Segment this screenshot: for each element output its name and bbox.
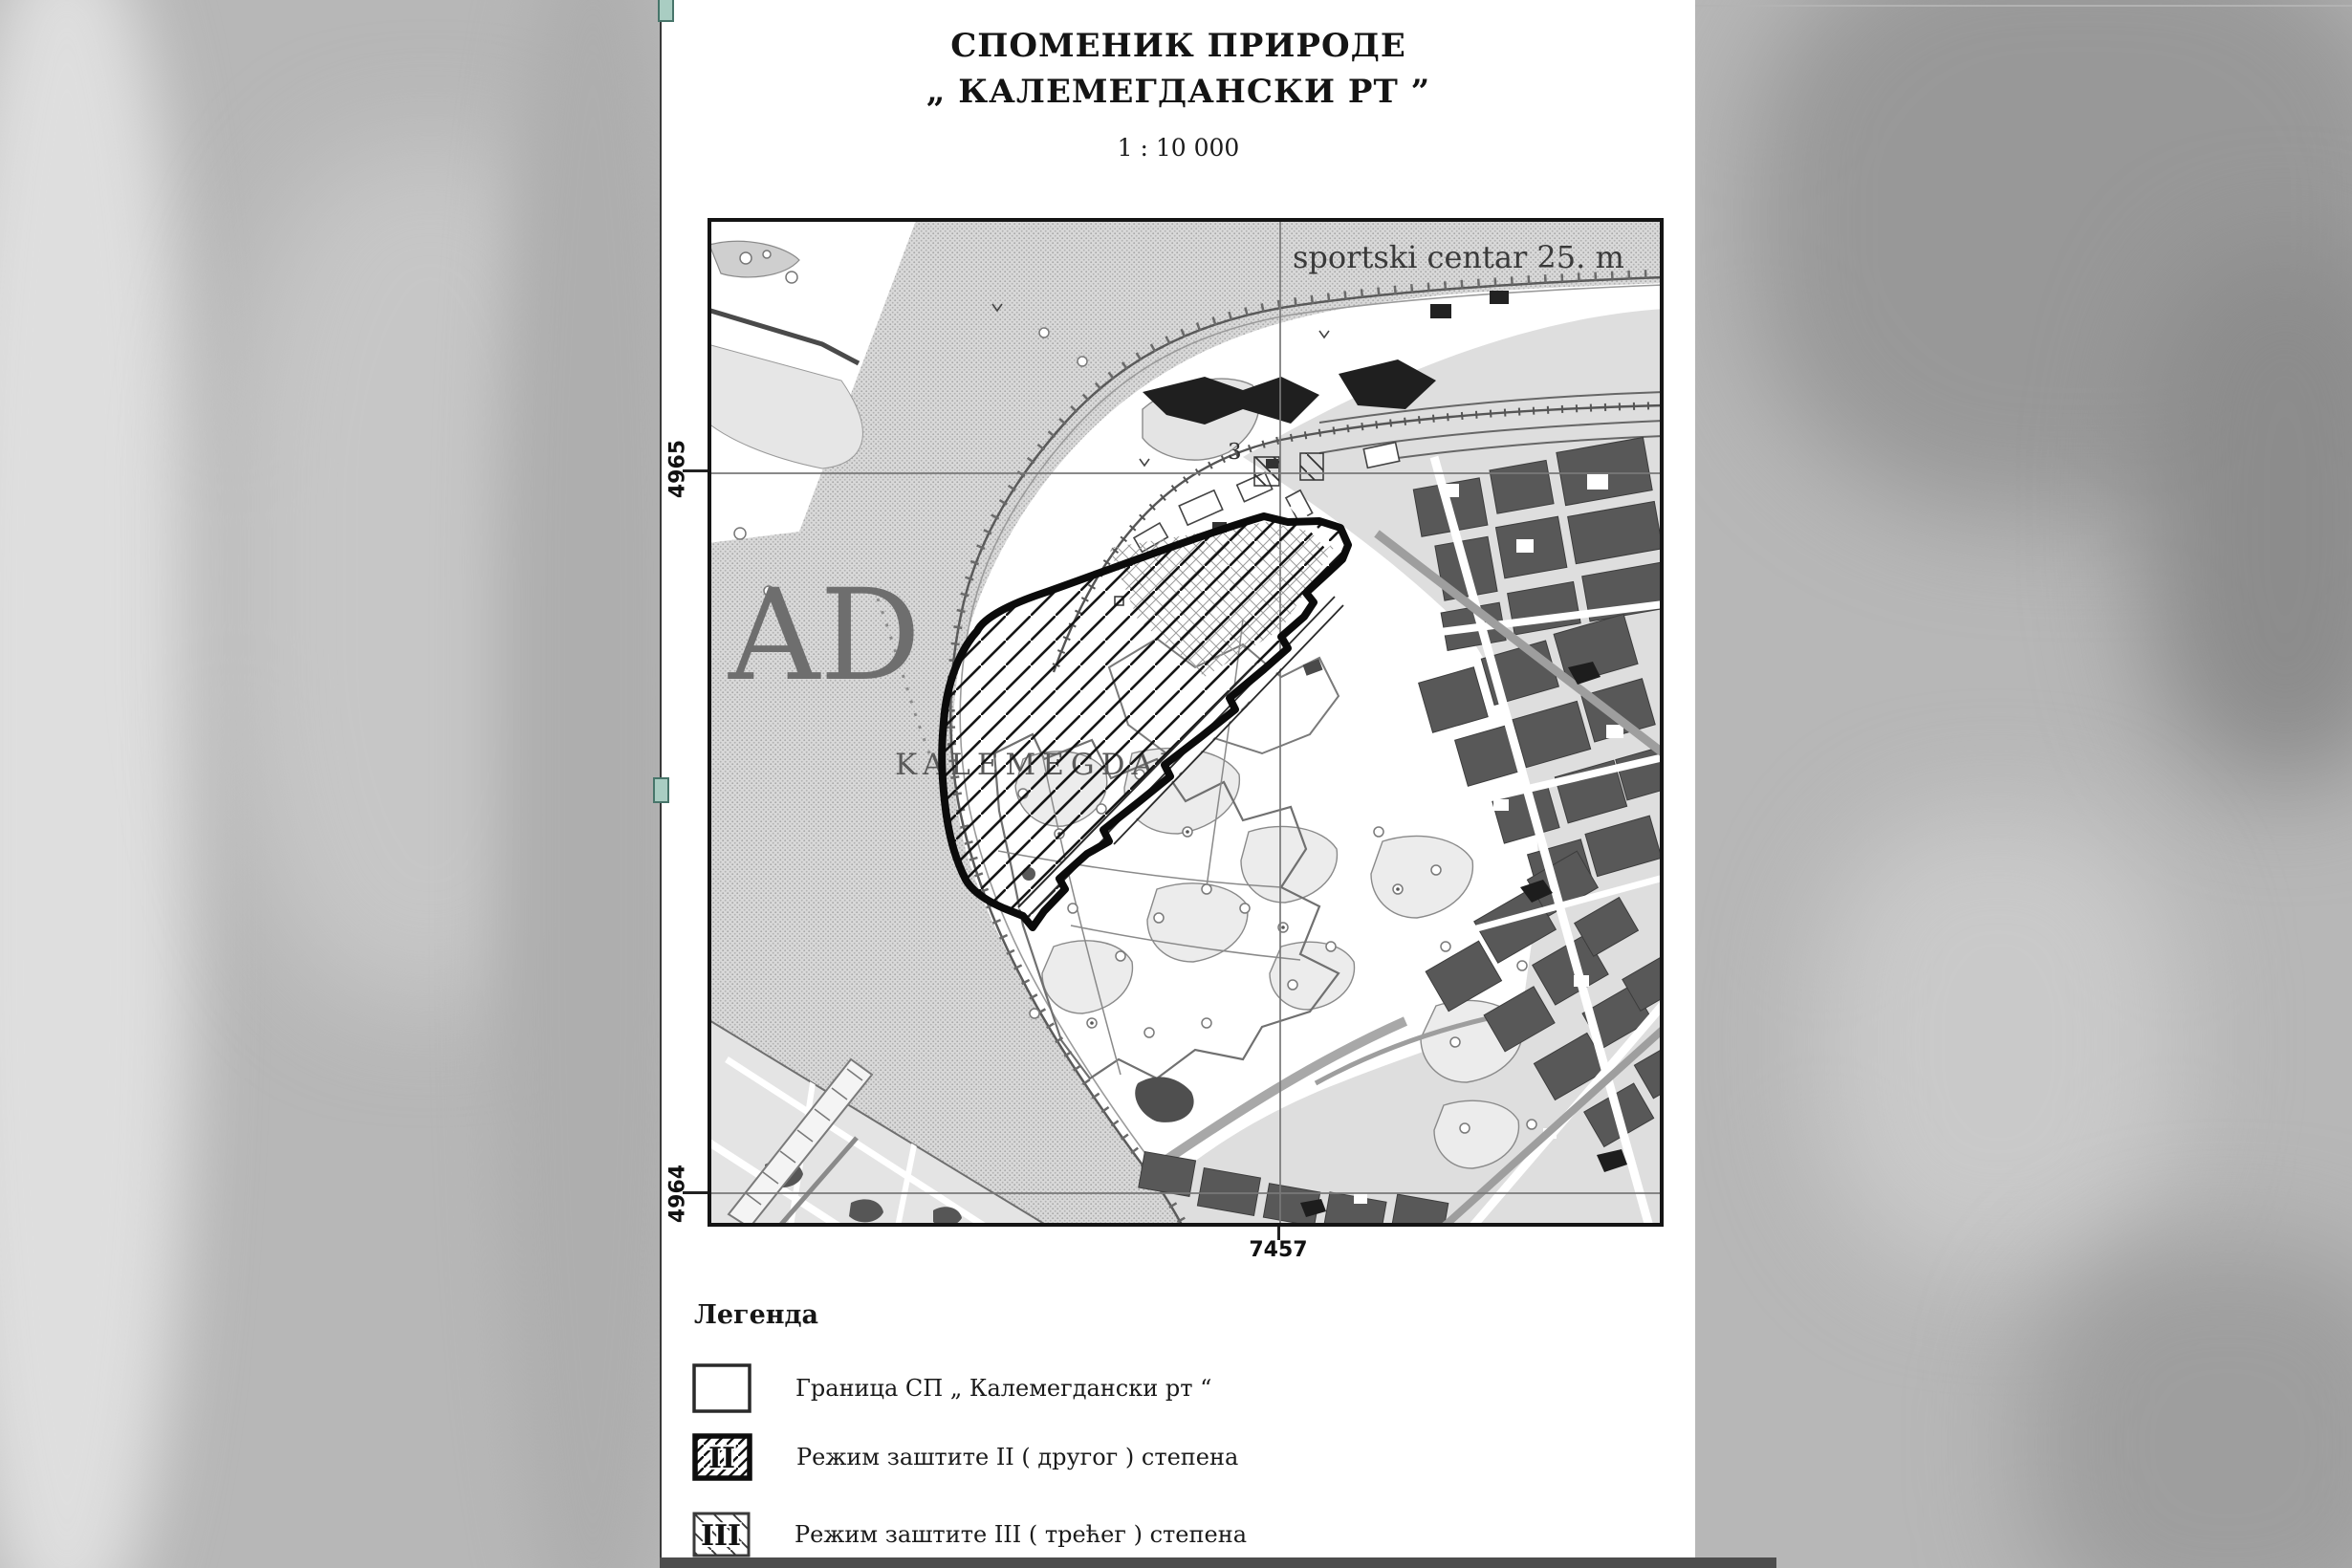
regime-3-symbol: III <box>692 1512 751 1557</box>
bottom-dark-bar <box>660 1557 1776 1568</box>
background-blob <box>2027 1243 2352 1568</box>
regime-2-roman: II <box>708 1442 735 1475</box>
boundary-symbol <box>692 1363 751 1413</box>
page-title-line2: „ КАЛЕМЕГДАНСКИ РТ ” <box>662 73 1695 111</box>
legend-item-regime-3: III Режим заштите III ( трећег ) степена <box>692 1512 1247 1557</box>
map-canvas: AD KALEMEGDAN sportski centar 25. m 3 <box>708 218 1664 1227</box>
background-blob <box>1817 813 2180 1272</box>
legend-item-label: Граница СП „ Калемегдански рт “ <box>795 1375 1211 1402</box>
regime-3-roman: III <box>701 1519 741 1553</box>
legend-item-regime-2: II Режим заштите II ( другог ) степена <box>692 1433 1238 1481</box>
label-ad: AD <box>728 562 921 709</box>
map-scale-label: 1 : 10 000 <box>662 134 1695 162</box>
background-blob <box>0 0 191 1568</box>
document-page[interactable]: СПОМЕНИК ПРИРОДЕ „ КАЛЕМЕГДАНСКИ РТ ” 1 … <box>660 0 1695 1568</box>
legend-item-label: Режим заштите III ( трећег ) степена <box>795 1521 1247 1548</box>
legend-item-label: Режим заштите II ( другог ) степена <box>796 1444 1238 1470</box>
selection-handle-top-left[interactable] <box>658 0 674 22</box>
grid-tick <box>683 1191 708 1194</box>
topographic-map-image[interactable]: AD KALEMEGDAN sportski centar 25. m 3 <box>708 218 1664 1227</box>
grid-tick <box>1277 1227 1280 1240</box>
legend-item-boundary: Граница СП „ Калемегдански рт “ <box>692 1363 1211 1413</box>
background-blob <box>2142 249 2352 784</box>
selection-handle-mid-left[interactable] <box>653 777 669 803</box>
label-road-number: 3 <box>1228 440 1242 465</box>
label-sportski-centar: sportski centar 25. m <box>1293 239 1624 275</box>
regime-2-symbol: II <box>692 1433 752 1481</box>
grid-label-7457: 7457 <box>1245 1238 1312 1262</box>
grid-tick <box>683 469 708 472</box>
legend-heading: Легенда <box>694 1300 818 1330</box>
page-title-line1: СПОМЕНИК ПРИРОДЕ <box>662 27 1695 65</box>
